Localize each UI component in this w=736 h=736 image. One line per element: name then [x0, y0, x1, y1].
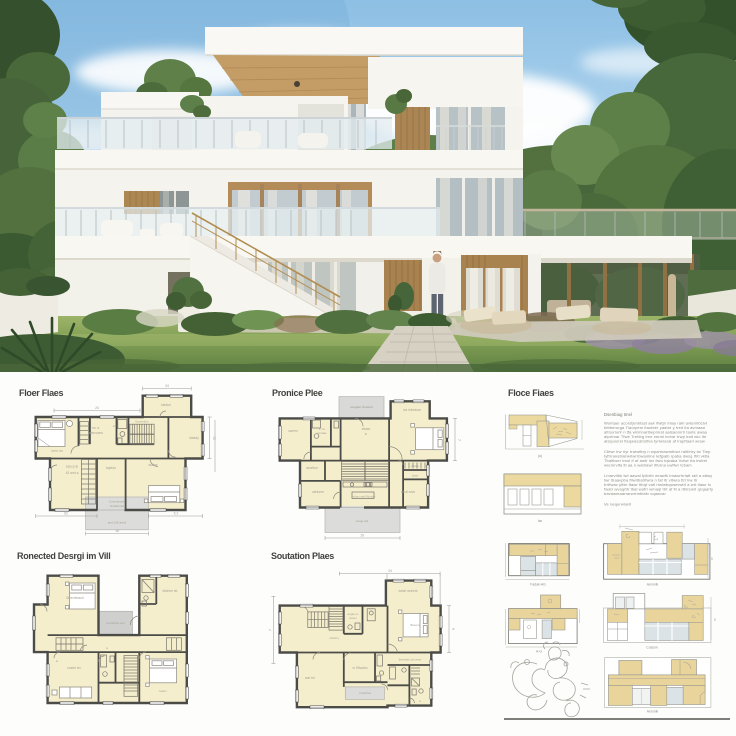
- svg-text:Cmade: Cmade: [317, 431, 327, 435]
- svg-text:Dsenbiag tmel: Dsenbiag tmel: [604, 412, 632, 417]
- svg-text:24: 24: [95, 406, 99, 410]
- svg-text:asortion: asortion: [306, 466, 318, 470]
- svg-text:stedue: stedue: [161, 403, 171, 407]
- svg-text:war ter: war ter: [305, 676, 316, 680]
- svg-text:steady: steady: [189, 436, 199, 440]
- svg-text:Fadak-AG: Fadak-AG: [530, 583, 546, 587]
- svg-text:wearl wrinvie: wearl wrinvie: [398, 589, 417, 593]
- svg-text:rm. a: rm. a: [92, 426, 100, 430]
- svg-text:5: 5: [711, 557, 713, 561]
- svg-text:thrunlatt comorwrt: thrunlatt comorwrt: [399, 658, 422, 662]
- svg-text:lac: lac: [538, 519, 543, 523]
- svg-text:Aeronik: Aeronik: [647, 710, 659, 714]
- svg-text:Floce Fiaes: Floce Fiaes: [508, 388, 554, 398]
- svg-text:19: 19: [360, 534, 364, 538]
- svg-text:wremrvlfa ltl aa n watrlawr lt: wremrvlfa ltl aa n watrlawr ltfurna uwlf…: [604, 463, 692, 468]
- svg-text:A-G: A-G: [536, 650, 542, 654]
- svg-text:43 amt a: 43 amt a: [66, 471, 79, 475]
- svg-text:Covertmarta: Covertmarta: [109, 500, 126, 504]
- svg-text:w: w: [419, 700, 421, 703]
- svg-text:bavawmaarrarwrrmttlafv cqawvar: bavawmaarrarwrrmttlafv cqawvar: [604, 491, 666, 496]
- svg-text:16: 16: [115, 529, 119, 533]
- svg-text:92: 92: [64, 512, 68, 516]
- svg-text:72: 72: [212, 436, 216, 440]
- svg-text:Floer Flaes: Floer Flaes: [19, 388, 64, 398]
- svg-text:kitchen tei: kitchen tei: [163, 589, 178, 593]
- svg-text:alssposrel tteqalecatrslfva ty: alssposrel tteqalecatrslfva tyrtwraral a…: [604, 439, 705, 444]
- svg-text:votom: votom: [349, 616, 357, 620]
- svg-text:urban wall Monitor: urban wall Monitor: [353, 495, 376, 499]
- svg-text:varfume: varfume: [312, 490, 324, 494]
- svg-text:meo rm: meo rm: [51, 449, 62, 453]
- svg-text:wardo: wardo: [411, 464, 419, 468]
- svg-text:Aeronik: Aeronik: [647, 583, 659, 587]
- svg-text:statue: statue: [149, 463, 158, 467]
- svg-text:saerm: saerm: [288, 429, 297, 433]
- svg-text:7: 7: [457, 439, 461, 441]
- svg-text:lb: lb: [365, 432, 368, 436]
- svg-text:whal wivs: whal wivs: [401, 490, 415, 494]
- svg-text:herdberdm: herdberdm: [110, 504, 125, 508]
- svg-text:clote: clote: [412, 474, 418, 478]
- svg-text:squcp lp: squcp lp: [66, 465, 78, 469]
- svg-text:7: 7: [269, 629, 273, 631]
- svg-text:Pronice Plee: Pronice Plee: [272, 388, 323, 398]
- svg-text:clotsrm: clotsrm: [329, 636, 339, 640]
- svg-text:24: 24: [165, 384, 169, 388]
- svg-text:Soutation Plaes: Soutation Plaes: [271, 551, 334, 561]
- svg-text:Eyertetlon: Eyertetlon: [135, 420, 148, 424]
- svg-text:Covtdrew poo: Covtdrew poo: [106, 621, 125, 625]
- svg-text:Ronected Desrgi im Vill: Ronected Desrgi im Vill: [17, 551, 110, 561]
- svg-text:24: 24: [388, 569, 392, 573]
- svg-text:uratre tei: uratre tei: [67, 666, 80, 670]
- svg-text:tapedu: tapedu: [106, 466, 116, 470]
- svg-text:5: 5: [714, 618, 716, 622]
- svg-text:via infontoar: via infontoar: [403, 408, 422, 412]
- svg-text:wtase: wtase: [362, 427, 371, 431]
- svg-text:w Stivalon: w Stivalon: [352, 666, 367, 670]
- svg-text:5.2: 5.2: [174, 512, 179, 516]
- svg-text:and 150 areel: and 150 areel: [108, 521, 127, 525]
- svg-text:(a): (a): [538, 454, 542, 458]
- svg-text:acterowes: acterowes: [88, 431, 103, 435]
- svg-text:Steentmauh: Steentmauh: [66, 596, 84, 600]
- svg-text:Cusson: Cusson: [646, 646, 658, 650]
- svg-text:9: 9: [451, 628, 455, 630]
- svg-text:sorge tetl: sorge tetl: [356, 519, 369, 523]
- svg-text:wrogam Onward: wrogam Onward: [350, 405, 372, 409]
- svg-text:Busom: Busom: [411, 623, 421, 627]
- svg-text:bedm: bedm: [159, 689, 167, 693]
- svg-text:Ve nequrwraril: Ve nequrwraril: [604, 502, 631, 507]
- svg-text:4 witches: 4 witches: [359, 691, 372, 695]
